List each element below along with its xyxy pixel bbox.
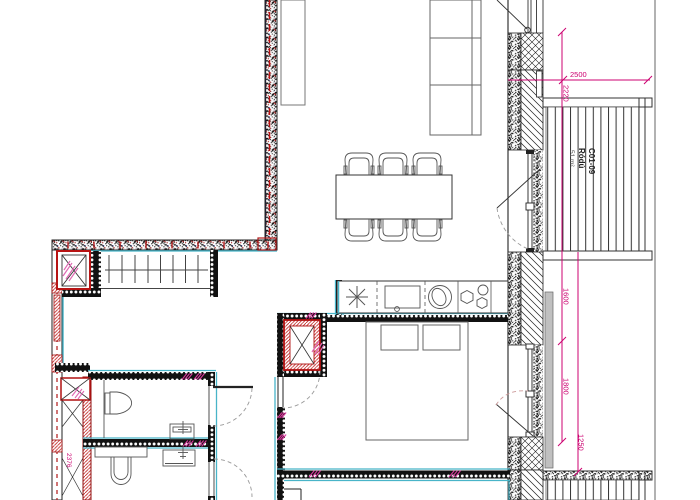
svg-text:2376: 2376 — [65, 453, 72, 468]
svg-text:1250: 1250 — [577, 434, 586, 451]
svg-text:1800: 1800 — [562, 378, 571, 395]
svg-text:C01-09: C01-09 — [587, 148, 596, 175]
svg-text:2500: 2500 — [570, 70, 587, 79]
svg-text:1600: 1600 — [562, 288, 571, 305]
svg-text:51 m²: 51 m² — [568, 150, 575, 167]
svg-text:2220: 2220 — [562, 85, 571, 102]
svg-text:Ródú: Ródú — [577, 148, 586, 169]
